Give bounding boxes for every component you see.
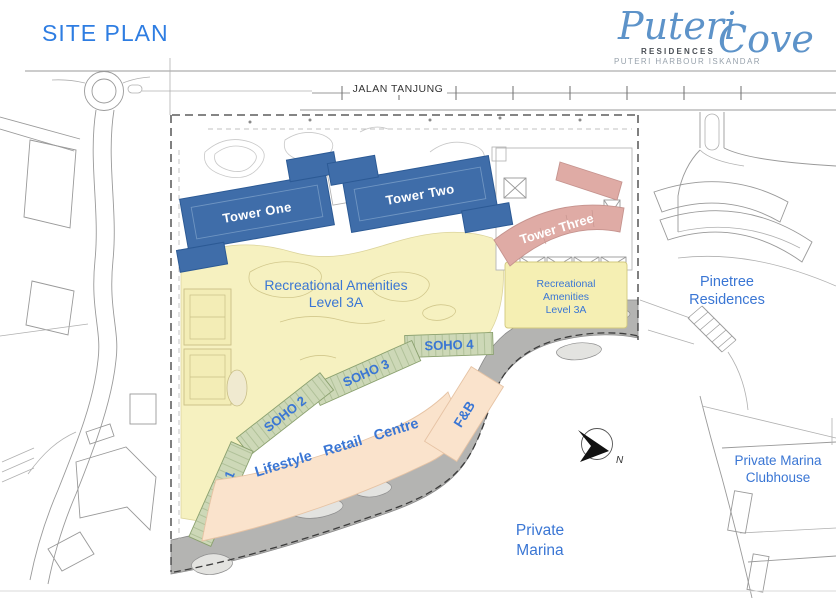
road-label: JALAN TANJUNG: [353, 83, 444, 95]
amenities-podium-box: Recreational Amenities Level 3A: [505, 262, 627, 328]
marina-label-line2: Marina: [516, 542, 564, 559]
site-plan-drawing: JALAN TANJUNG: [0, 0, 836, 598]
compass-n-label: N: [616, 455, 624, 466]
clubhouse-label-line1: Private Marina: [734, 453, 822, 468]
pinetree-label-line2: Residences: [689, 292, 765, 308]
site-plan-page: SITE PLAN Puteri Cove RESIDENCES PUTERI …: [0, 0, 836, 598]
soho-4-label: SOHO 4: [424, 337, 474, 354]
marina-label-line1: Private: [516, 522, 564, 539]
amenities-podium-line2: Amenities: [543, 291, 589, 303]
offsite-buildings-right: [640, 182, 836, 598]
pool: [227, 370, 247, 406]
amenities-main-label-line1: Recreational Amenities: [264, 277, 407, 293]
tree-dots: [249, 117, 582, 124]
clubhouse-label-line2: Clubhouse: [746, 470, 811, 485]
amenities-podium-line1: Recreational: [537, 278, 596, 290]
stair-strip: [688, 306, 736, 352]
pinetree-label-line1: Pinetree: [700, 274, 754, 290]
amenities-main-label-line2: Level 3A: [309, 294, 364, 310]
amenities-podium-line3: Level 3A: [546, 304, 587, 316]
offsite-buildings-left: [0, 140, 156, 571]
north-compass: N: [578, 429, 624, 467]
